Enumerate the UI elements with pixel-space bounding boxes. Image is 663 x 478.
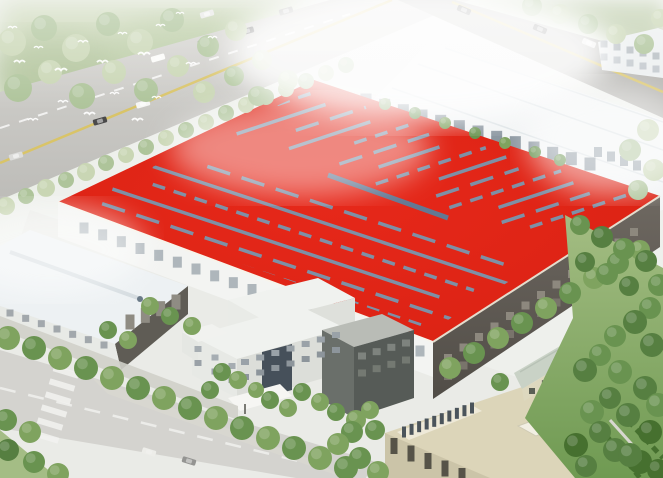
window xyxy=(373,365,381,372)
window xyxy=(271,350,279,356)
tree xyxy=(204,406,228,430)
tree xyxy=(293,383,311,401)
tree xyxy=(99,321,117,339)
window xyxy=(192,264,201,275)
rendering-canvas xyxy=(0,0,663,478)
tree xyxy=(279,399,297,417)
tree xyxy=(638,420,662,444)
tree xyxy=(18,188,34,204)
window xyxy=(85,336,92,343)
tree xyxy=(511,312,533,334)
window xyxy=(425,419,429,430)
window xyxy=(432,416,436,427)
tree xyxy=(640,333,663,357)
window xyxy=(241,359,249,365)
window xyxy=(442,461,449,477)
tree xyxy=(118,147,134,163)
window xyxy=(462,405,466,416)
window xyxy=(302,341,310,347)
window xyxy=(402,427,406,438)
canopy-post xyxy=(244,404,246,414)
tree xyxy=(77,163,95,181)
window xyxy=(459,468,466,478)
tree xyxy=(469,127,481,139)
tree xyxy=(19,421,41,443)
window xyxy=(402,357,410,364)
window xyxy=(417,421,421,432)
tree xyxy=(178,396,202,420)
window xyxy=(408,446,415,462)
window xyxy=(440,413,444,424)
window xyxy=(416,346,425,357)
window xyxy=(38,320,45,327)
window xyxy=(172,295,181,310)
window xyxy=(332,332,340,338)
tree xyxy=(349,447,371,469)
tree xyxy=(589,421,611,443)
window xyxy=(69,331,76,338)
window xyxy=(317,352,325,358)
tree xyxy=(256,426,280,450)
tree xyxy=(623,310,647,334)
tree xyxy=(575,252,595,272)
tree xyxy=(161,307,179,325)
tree xyxy=(618,443,642,467)
window xyxy=(358,353,366,360)
tree xyxy=(308,446,332,470)
tree xyxy=(138,139,154,155)
tree xyxy=(141,297,159,315)
window xyxy=(154,250,163,261)
tree xyxy=(619,276,639,296)
window xyxy=(630,228,638,236)
tree xyxy=(570,215,590,235)
tree xyxy=(58,172,74,188)
tree xyxy=(596,263,618,285)
tree xyxy=(575,455,597,477)
window xyxy=(402,340,410,347)
tree xyxy=(261,391,279,409)
window xyxy=(447,411,451,422)
window xyxy=(229,277,238,288)
window xyxy=(271,365,279,371)
tree xyxy=(463,342,485,364)
window xyxy=(387,361,395,368)
window xyxy=(173,257,182,268)
tree xyxy=(23,451,45,473)
window xyxy=(54,326,61,333)
tree xyxy=(248,382,264,398)
tree xyxy=(74,356,98,380)
window xyxy=(212,355,219,361)
window xyxy=(317,337,325,343)
tree xyxy=(361,401,379,419)
tree xyxy=(119,331,137,349)
window xyxy=(7,310,14,317)
tree xyxy=(365,420,385,440)
haze-glow xyxy=(170,100,430,196)
window xyxy=(195,360,202,366)
tree xyxy=(152,386,176,410)
window xyxy=(410,424,414,435)
window xyxy=(425,453,432,469)
tree xyxy=(229,371,247,389)
window xyxy=(373,348,381,355)
tree xyxy=(604,325,626,347)
tree xyxy=(499,137,511,149)
tree xyxy=(564,433,588,457)
window xyxy=(256,370,264,376)
tree xyxy=(580,400,604,424)
skylight-end-cap xyxy=(137,296,143,302)
tree xyxy=(635,250,657,272)
window xyxy=(256,355,264,361)
window xyxy=(475,333,483,341)
window xyxy=(287,346,295,352)
window xyxy=(553,281,561,289)
window xyxy=(358,370,366,377)
window xyxy=(522,302,530,310)
tree xyxy=(487,327,509,349)
tree xyxy=(37,179,55,197)
tree xyxy=(183,317,201,335)
top-haze-veil xyxy=(0,0,663,110)
tree xyxy=(535,297,557,319)
tree xyxy=(491,373,509,391)
window xyxy=(302,356,310,362)
tree xyxy=(599,387,621,409)
window xyxy=(391,438,398,454)
window xyxy=(195,346,202,352)
window xyxy=(248,284,257,295)
window xyxy=(210,270,219,281)
tree xyxy=(573,358,597,382)
window xyxy=(22,315,29,322)
window xyxy=(387,344,395,351)
tree xyxy=(100,366,124,390)
tree xyxy=(327,433,349,455)
tree xyxy=(559,282,581,304)
tree xyxy=(613,238,635,260)
tree xyxy=(608,360,632,384)
window xyxy=(101,342,108,349)
tree xyxy=(230,416,254,440)
aerial-factory-rendering xyxy=(0,0,663,478)
tree xyxy=(213,363,231,381)
tree xyxy=(311,393,329,411)
tree xyxy=(439,357,461,379)
tree xyxy=(22,336,46,360)
tree xyxy=(591,226,613,248)
window xyxy=(332,347,340,353)
window xyxy=(455,408,459,419)
tree xyxy=(201,381,219,399)
window xyxy=(470,403,474,414)
window xyxy=(287,361,295,367)
tree xyxy=(616,403,640,427)
tree xyxy=(282,436,306,460)
tree xyxy=(48,346,72,370)
tree xyxy=(126,376,150,400)
window xyxy=(126,315,135,330)
window xyxy=(529,388,535,394)
tree xyxy=(98,155,114,171)
tree xyxy=(327,403,345,421)
